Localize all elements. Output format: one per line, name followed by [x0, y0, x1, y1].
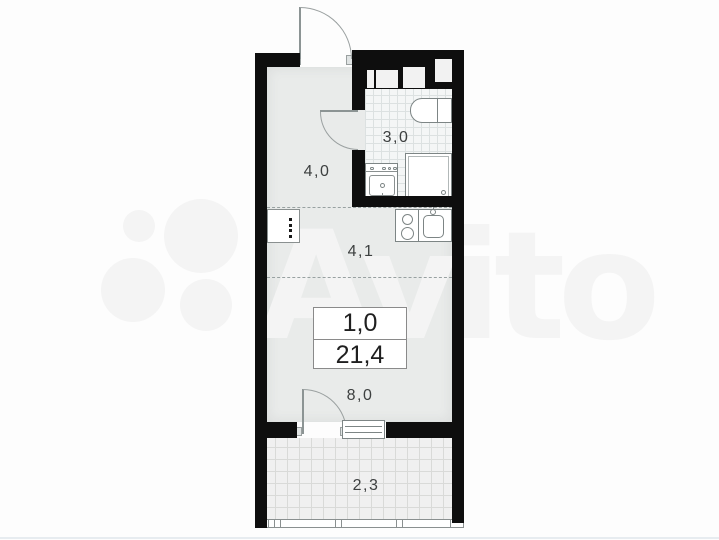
- wall-top-left: [255, 53, 300, 67]
- floorplan-image: Avito: [0, 0, 719, 540]
- glazing-mullion: [335, 519, 342, 528]
- cabinet-dot-icon: [289, 218, 292, 221]
- image-bottom-border: [0, 537, 719, 539]
- shower-cabin: [405, 153, 452, 200]
- cabinet-dot-icon: [289, 229, 292, 232]
- bathroom-wall-lower: [352, 150, 365, 202]
- toilet: [410, 98, 452, 123]
- avito-logo-circle-bottom-right: [180, 279, 232, 331]
- balcony-glazing: [263, 519, 464, 528]
- zone-divider-dashed-bottom: [267, 277, 452, 278]
- summary-box: 1,0 21,4: [313, 307, 407, 369]
- vent-shaft: [376, 70, 398, 88]
- washing-machine: [365, 163, 398, 200]
- hallway-cabinet: [267, 209, 300, 243]
- cabinet-dot-icon: [289, 224, 292, 227]
- window: [342, 420, 385, 439]
- total-area-value: 21,4: [314, 340, 406, 370]
- cabinet-dot-icon: [289, 235, 292, 238]
- washer-drum-center-icon: [380, 183, 385, 188]
- washer-knob-icon: [388, 167, 392, 171]
- avito-logo-circle-bottom-left: [101, 258, 165, 322]
- vent-shaft: [403, 67, 425, 88]
- toilet-tank: [437, 99, 451, 122]
- room-label-balcony: 2,3: [353, 477, 380, 495]
- avito-logo-circle-large: [164, 199, 238, 273]
- vent-shaft-block: [352, 50, 464, 89]
- shower-drain-icon: [441, 190, 446, 195]
- avito-logo-circle-small: [123, 210, 155, 242]
- washer-knob-icon: [393, 167, 397, 171]
- balcony-wall-left-segment: [255, 422, 297, 438]
- washer-knob-icon: [370, 167, 374, 171]
- entrance-door-swing-arc: [300, 7, 352, 59]
- rooms-count-value: 1,0: [314, 308, 406, 340]
- room-label-kitchen: 4,1: [348, 243, 375, 261]
- room-label-hallway: 4,0: [304, 163, 331, 181]
- bathroom-wall-upper: [352, 67, 365, 110]
- balcony-wall-right-segment: [386, 422, 464, 438]
- zone-divider-dashed-top: [267, 207, 452, 208]
- wall-right: [452, 50, 464, 523]
- glazing-mullion: [396, 519, 403, 528]
- room-label-living-room: 8,0: [347, 387, 374, 405]
- wall-left: [255, 53, 267, 528]
- bathroom-wall-bottom: [352, 196, 452, 207]
- room-label-bathroom: 3,0: [383, 129, 410, 147]
- vent-shaft: [367, 70, 374, 88]
- glazing-mullion: [274, 519, 281, 528]
- washer-knob-icon: [382, 167, 386, 171]
- window-pane: [345, 426, 382, 433]
